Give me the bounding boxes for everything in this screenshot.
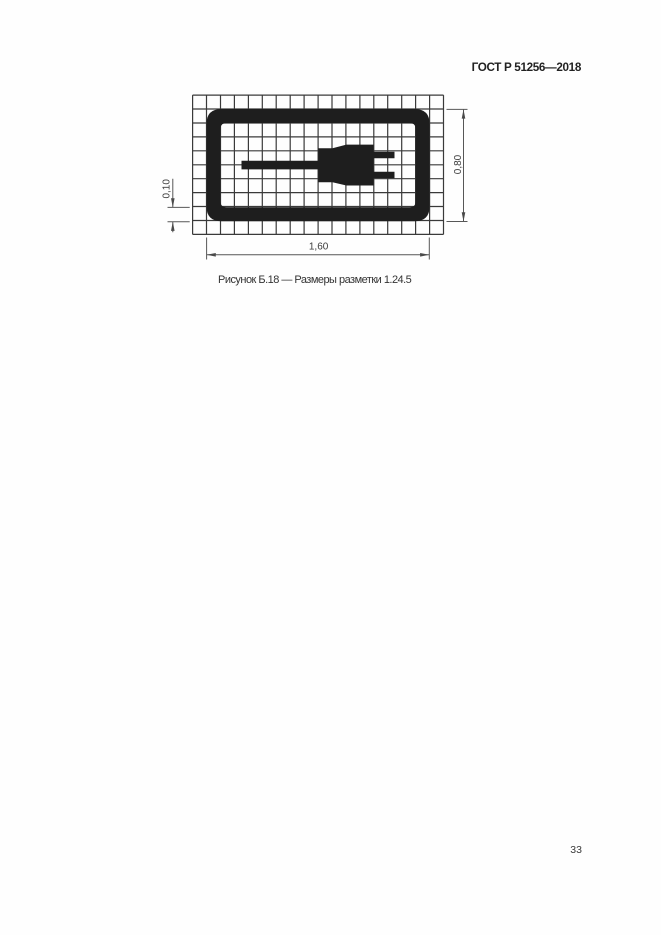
svg-text:0,10: 0,10 — [162, 179, 173, 199]
svg-text:1,60: 1,60 — [309, 241, 329, 252]
svg-text:0,80: 0,80 — [453, 154, 464, 174]
